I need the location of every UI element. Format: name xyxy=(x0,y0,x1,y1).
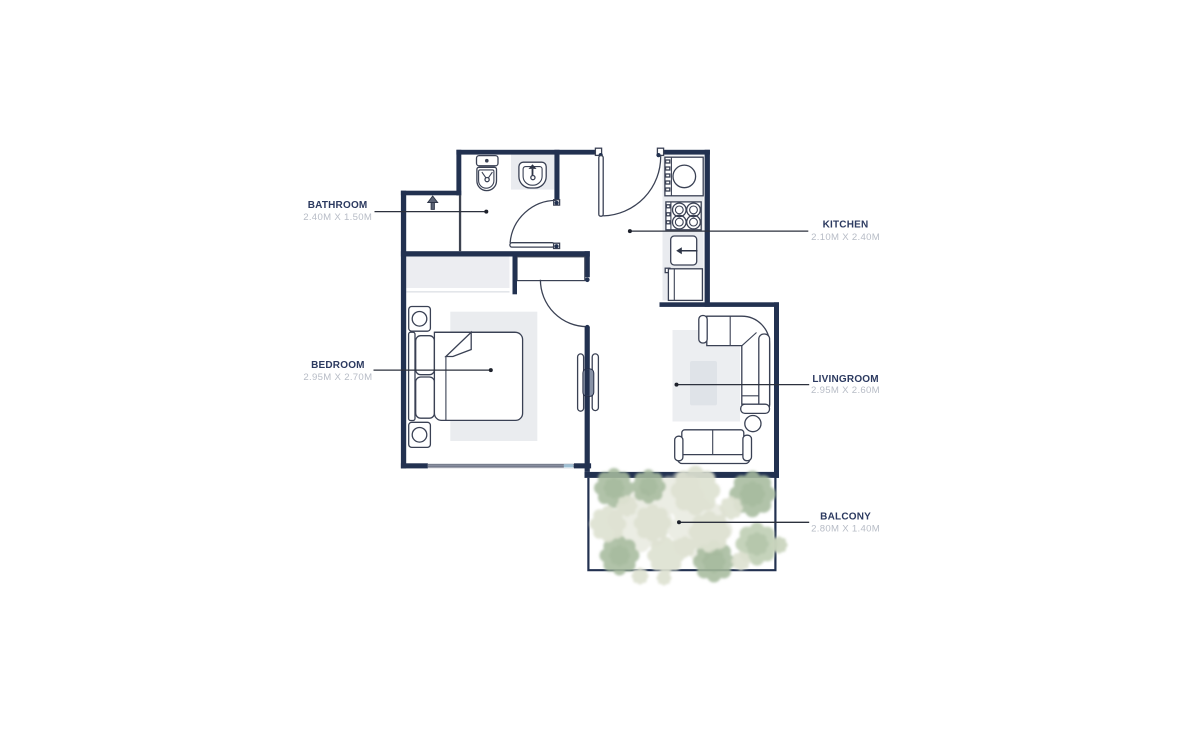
svg-text:BEDROOM: BEDROOM xyxy=(311,360,365,371)
svg-text:2.40M X 1.50M: 2.40M X 1.50M xyxy=(303,212,372,223)
svg-text:2.10M X 2.40M: 2.10M X 2.40M xyxy=(811,232,880,243)
svg-text:2.80M X 1.40M: 2.80M X 1.40M xyxy=(811,524,880,535)
svg-text:BATHROOM: BATHROOM xyxy=(308,200,368,211)
svg-text:BALCONY: BALCONY xyxy=(820,512,871,523)
svg-text:2.95M X 2.70M: 2.95M X 2.70M xyxy=(303,372,372,383)
svg-text:2.95M X 2.60M: 2.95M X 2.60M xyxy=(811,385,880,396)
svg-text:KITCHEN: KITCHEN xyxy=(823,220,869,231)
svg-text:LIVINGROOM: LIVINGROOM xyxy=(812,374,878,385)
